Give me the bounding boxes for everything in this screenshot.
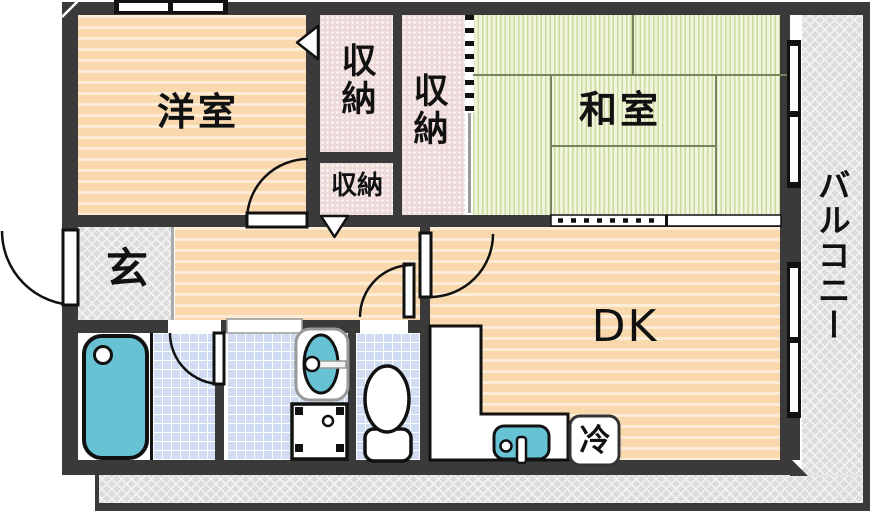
label-closet-east: 収納	[408, 72, 447, 148]
label-dk: DK	[585, 303, 665, 351]
closet-wedge-small	[321, 216, 348, 237]
label-closet-west: 収納	[336, 42, 375, 118]
corner-nick	[62, 1, 78, 17]
sliding-door-japanese-dk	[551, 215, 781, 226]
label-balcony: バルコニー	[813, 168, 849, 343]
washbasin	[296, 329, 348, 400]
label-refrigerator: 冷	[578, 424, 612, 458]
bath-area-door	[168, 320, 224, 384]
toilet-door	[360, 264, 414, 333]
window-balcony-japanese	[787, 40, 801, 188]
dk-door	[420, 233, 493, 297]
washroom-opening	[227, 319, 302, 333]
label-entrance: 玄	[104, 246, 150, 292]
window-north	[114, 0, 228, 14]
entrance-door	[2, 230, 78, 305]
label-japanese-room: 和室	[574, 90, 666, 132]
kitchen-sink	[494, 426, 549, 463]
washing-machine-pan	[292, 404, 347, 459]
bathtub	[84, 336, 147, 458]
label-closet-small: 収納	[322, 172, 392, 201]
closet-wedge-west	[297, 26, 318, 59]
label-western-room: 洋室	[152, 92, 244, 134]
window-balcony-dk	[787, 262, 801, 418]
toilet	[365, 366, 411, 461]
floor-plan: 洋室 和室 DK 玄 収納 収納 収納 バルコニー 冷	[0, 0, 877, 518]
western-room-door	[247, 159, 308, 227]
